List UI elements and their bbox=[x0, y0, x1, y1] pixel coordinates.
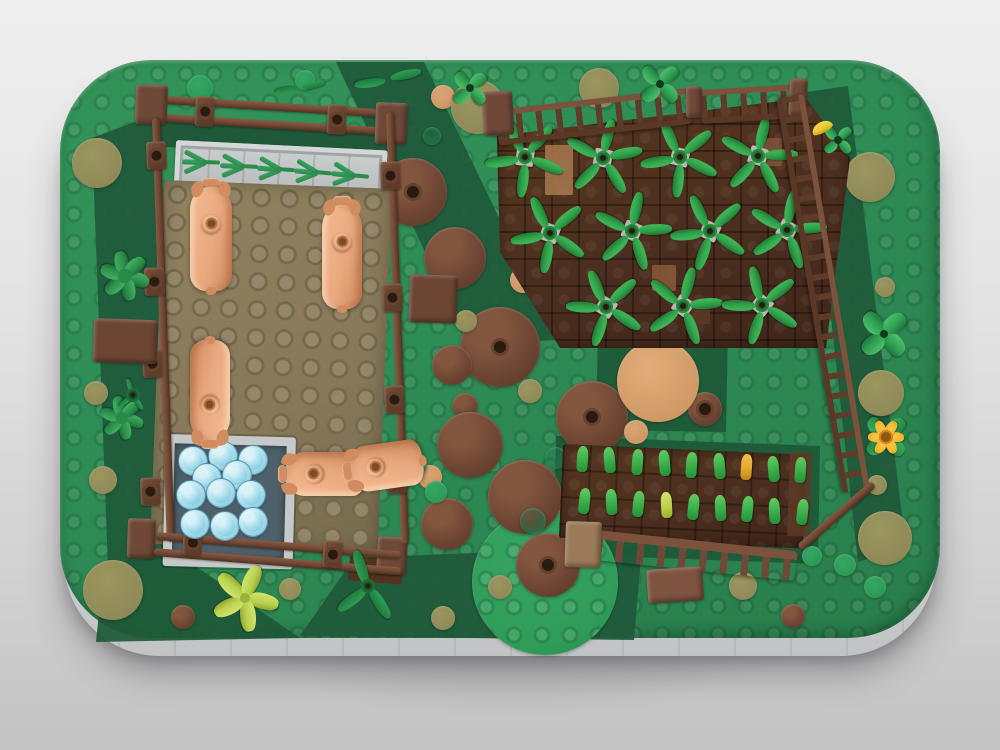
dirt-circle-olive bbox=[431, 606, 455, 630]
clover-center bbox=[466, 84, 474, 92]
flower-center bbox=[881, 432, 891, 442]
dirt-circle-olive bbox=[845, 152, 895, 202]
pig-snout bbox=[333, 196, 351, 205]
fence-post-hole bbox=[196, 103, 213, 120]
fern-stem bbox=[240, 164, 258, 169]
water-stud bbox=[176, 480, 206, 510]
stud-hole bbox=[539, 556, 557, 574]
crop-sprout-sprout bbox=[631, 448, 644, 475]
pig-body bbox=[190, 340, 230, 440]
pig-body bbox=[190, 187, 232, 291]
brown-brick bbox=[127, 518, 156, 559]
pig bbox=[190, 181, 232, 293]
dirt-circle-olive bbox=[89, 466, 117, 494]
fern-plant-piece bbox=[182, 148, 223, 175]
pig-stud-hole bbox=[336, 236, 348, 248]
fence-post-hole bbox=[324, 546, 341, 563]
crop-plant-center bbox=[676, 299, 690, 313]
plant-center-hole bbox=[520, 152, 530, 162]
brown-brick bbox=[482, 90, 514, 136]
fence-post bbox=[380, 161, 401, 190]
fern-plant-piece bbox=[330, 160, 372, 190]
crop-plant-center bbox=[599, 300, 613, 314]
brown-brick bbox=[686, 86, 702, 118]
pig-tail bbox=[337, 305, 348, 313]
fence-post bbox=[194, 96, 215, 127]
stud-hole bbox=[404, 183, 422, 201]
pig-snout bbox=[202, 178, 220, 187]
crop-sprout-lime bbox=[660, 492, 672, 519]
clover-center bbox=[880, 330, 888, 338]
fence-post-hole bbox=[386, 391, 403, 408]
dirt-circle-brown bbox=[432, 345, 472, 385]
plant-center-hole bbox=[627, 226, 637, 236]
dirt-circle-olive bbox=[875, 277, 895, 297]
crop-sprout-sprout bbox=[606, 489, 618, 516]
bush-center bbox=[116, 412, 127, 423]
fence-post bbox=[384, 385, 405, 414]
plant-center-hole bbox=[598, 153, 608, 163]
dirt-circle-brown bbox=[421, 498, 473, 550]
lime-center bbox=[240, 593, 250, 603]
fern-stem bbox=[202, 160, 220, 165]
crop-plant-center bbox=[673, 150, 687, 164]
plant-center-hole bbox=[757, 300, 767, 310]
brown-brick bbox=[135, 84, 168, 125]
plant-center-hole bbox=[675, 152, 685, 162]
crop-plant-center bbox=[625, 224, 639, 238]
pig-body bbox=[322, 205, 362, 309]
leaf3-center bbox=[126, 388, 140, 402]
crop-plant-center bbox=[751, 149, 765, 163]
fence-post-hole bbox=[382, 167, 399, 184]
round-plate-dark-green bbox=[423, 127, 441, 145]
crop-plant-center bbox=[596, 151, 610, 165]
crop-plant-center bbox=[518, 150, 532, 164]
fence-post bbox=[322, 540, 343, 568]
plant-hole bbox=[129, 391, 138, 400]
water-stud bbox=[206, 478, 236, 508]
crop-plant-center bbox=[780, 223, 794, 237]
brown-brick bbox=[564, 521, 602, 568]
brown-brick bbox=[92, 318, 157, 364]
fence-post-hole bbox=[384, 289, 401, 306]
dirt-circle-tan bbox=[624, 420, 648, 444]
round-plate-green bbox=[864, 576, 886, 598]
plant-center-hole bbox=[705, 226, 715, 236]
brown-brick bbox=[646, 566, 704, 604]
water-stud bbox=[238, 507, 268, 537]
crop-sprout-sprout bbox=[576, 446, 589, 473]
stud-hole bbox=[583, 408, 601, 426]
pig-stud-hole bbox=[204, 399, 216, 411]
clover-center bbox=[834, 136, 842, 144]
fern-plant-piece bbox=[293, 157, 335, 186]
pig-back-stud bbox=[333, 232, 352, 251]
water-stud bbox=[180, 509, 210, 539]
dirt-circle-olive bbox=[858, 370, 904, 416]
plant-center-hole bbox=[678, 301, 688, 311]
leaf3-center bbox=[361, 579, 375, 593]
dirt-circle-tan-large bbox=[617, 340, 699, 422]
dirt-circle-olive bbox=[858, 511, 912, 565]
plant-center-hole bbox=[545, 228, 555, 238]
crop-plant-center bbox=[755, 298, 769, 312]
round-plate-green bbox=[834, 554, 856, 576]
fence-post bbox=[382, 283, 403, 312]
plant-center-hole bbox=[782, 225, 792, 235]
fence-post-hole bbox=[142, 483, 159, 500]
fern-plant-piece bbox=[219, 152, 260, 180]
crop-sprout-sprout bbox=[714, 495, 726, 522]
plant-center-hole bbox=[601, 302, 611, 312]
fence-post-hole bbox=[328, 111, 345, 128]
fence-post bbox=[146, 141, 167, 170]
pig-snout bbox=[278, 465, 287, 483]
round-plate-green bbox=[802, 546, 822, 566]
crop-plant-center bbox=[543, 226, 557, 240]
crop-sprout-sprout bbox=[685, 451, 698, 478]
pig bbox=[190, 338, 230, 446]
round-plate-green bbox=[425, 481, 447, 503]
pig-stud-hole bbox=[205, 218, 217, 230]
pig-stud-hole bbox=[369, 461, 383, 475]
dirt-circle-olive bbox=[455, 310, 477, 332]
plant-center-hole bbox=[753, 151, 763, 161]
dirt-circle-olive bbox=[279, 578, 301, 600]
pig-back-stud bbox=[202, 214, 221, 233]
water-stud bbox=[236, 480, 266, 510]
dirt-circle-brown bbox=[781, 604, 805, 628]
dirt-circle-brown bbox=[437, 412, 503, 478]
crop-plant-leaf bbox=[722, 300, 755, 311]
stud-hole bbox=[696, 400, 714, 418]
lego-farm-render bbox=[0, 0, 1000, 750]
dirt-circle-olive bbox=[518, 379, 542, 403]
dirt-circle-brown bbox=[556, 381, 628, 453]
dirt-circle-olive bbox=[83, 560, 143, 620]
round-plate-dark-green bbox=[520, 508, 546, 534]
pig-snout bbox=[201, 440, 219, 449]
crop-sprout-sprout bbox=[686, 493, 700, 520]
dirt-circle-olive bbox=[488, 575, 512, 599]
fence-post bbox=[326, 104, 347, 135]
pig-tail bbox=[205, 336, 216, 344]
water-stud bbox=[210, 511, 240, 541]
pig-back-stud bbox=[201, 395, 220, 414]
fern-plant-piece bbox=[256, 155, 298, 184]
crop-sprout-sprout bbox=[795, 499, 809, 526]
dirt-circle-olive bbox=[72, 138, 122, 188]
pig-stud-hole bbox=[308, 468, 320, 480]
pig-tail bbox=[206, 287, 217, 295]
bush-center bbox=[118, 269, 131, 282]
crop-plant-center bbox=[703, 224, 717, 238]
fence-post-hole bbox=[148, 147, 165, 164]
stud-hole bbox=[491, 338, 509, 356]
plant-hole bbox=[364, 582, 373, 591]
pig bbox=[322, 199, 362, 311]
crop-sprout-gold bbox=[740, 454, 753, 481]
dirt-circle-olive bbox=[84, 381, 108, 405]
pig-back-stud bbox=[304, 465, 323, 484]
crop-sprout-sprout bbox=[712, 453, 725, 480]
dirt-circle-brown bbox=[171, 605, 195, 629]
clover-center bbox=[656, 80, 664, 88]
fence-post bbox=[140, 477, 161, 506]
brown-brick bbox=[408, 274, 458, 324]
